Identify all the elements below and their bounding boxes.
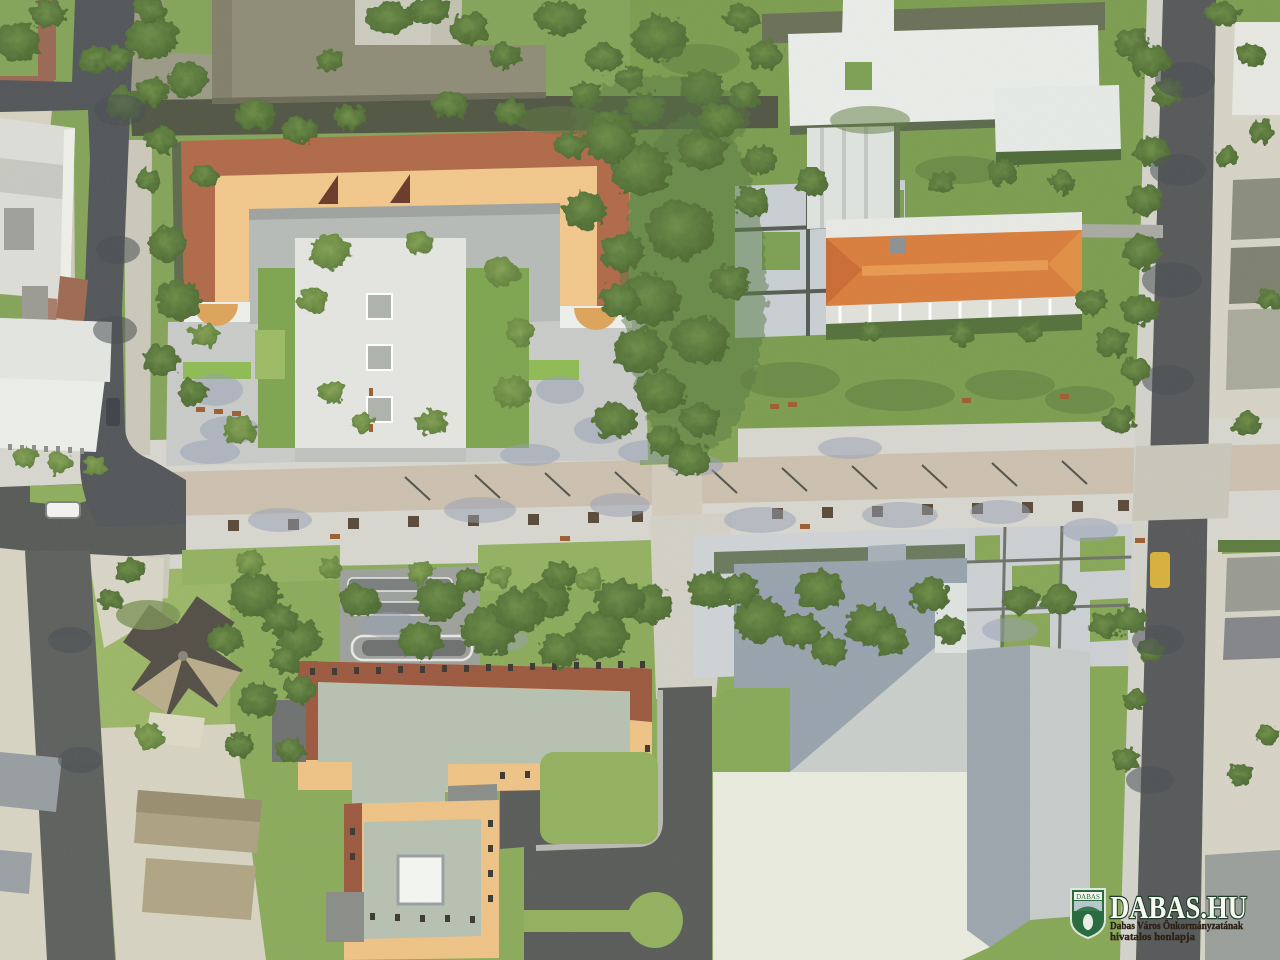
svg-text:hivatalos honlapja: hivatalos honlapja [1110, 931, 1195, 943]
svg-text:DABAS: DABAS [1076, 893, 1100, 901]
